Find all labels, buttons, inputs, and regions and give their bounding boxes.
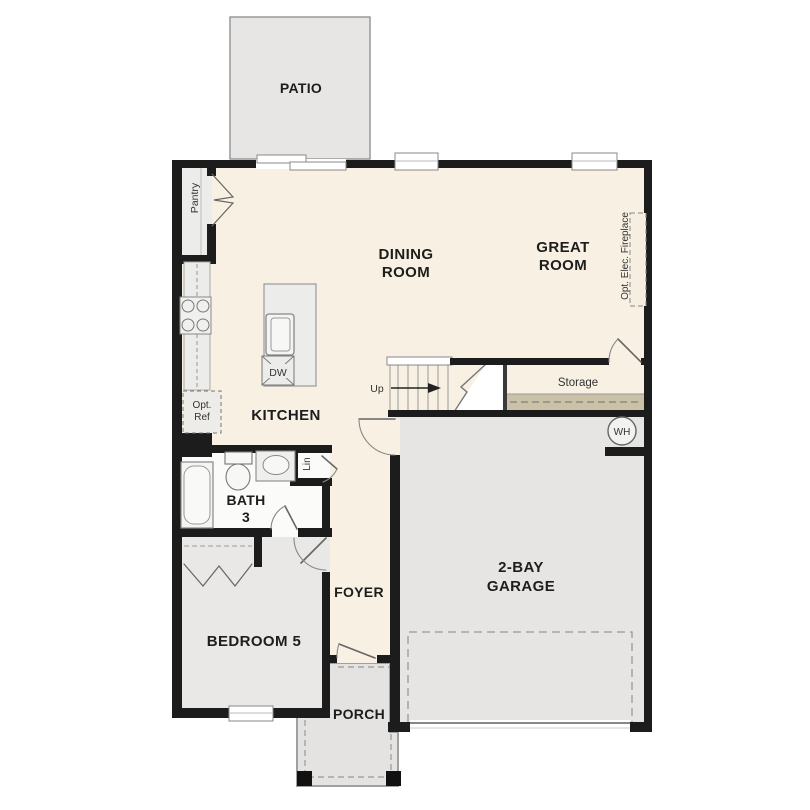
- floorplan-page: PATIO DINING ROOM GREAT ROOM KITCHEN BAT…: [0, 0, 810, 810]
- bedroom-area: [177, 532, 330, 712]
- window-great-room: [572, 153, 617, 170]
- wall-lin-bottom: [290, 478, 332, 486]
- great-label-1: GREAT: [536, 239, 589, 256]
- wall-garage-top: [388, 410, 652, 417]
- wall-pantry-stub-top: [207, 168, 216, 176]
- wall-bath-bottom-right: [298, 528, 332, 537]
- bedroom-label: BEDROOM 5: [207, 633, 301, 650]
- wall-porch-left: [322, 655, 337, 663]
- stove-icon: [180, 297, 211, 334]
- garage-door-opening: [410, 720, 630, 732]
- water-heater-label: WH: [614, 427, 631, 438]
- floorplan-svg: PATIO DINING ROOM GREAT ROOM KITCHEN BAT…: [0, 0, 810, 810]
- bath-label-2: 3: [242, 509, 250, 525]
- wall-pantry-stub-bottom: [207, 224, 216, 255]
- stair-handrail: [387, 357, 452, 365]
- wall-garage-bottom-left: [388, 722, 410, 732]
- storage-label: Storage: [558, 377, 598, 389]
- wall-garage-left: [390, 455, 400, 732]
- dishwasher-label: DW: [269, 367, 287, 379]
- foyer-hall-area: [325, 410, 396, 660]
- porch-post-left: [297, 771, 312, 786]
- bathtub-icon: [181, 462, 213, 528]
- patio-label: PATIO: [280, 80, 322, 96]
- wall-stairs-top-stub: [641, 358, 652, 365]
- bath-label-1: BATH: [226, 492, 265, 508]
- fireplace-dashed-box: [630, 213, 646, 306]
- toilet-icon: [225, 452, 252, 490]
- wall-kitchen-block: [172, 433, 212, 457]
- patio-slider-panel2: [290, 162, 346, 170]
- wall-stairs-top: [450, 358, 609, 365]
- porch-label: PORCH: [333, 706, 385, 722]
- fireplace-label: Opt. Elec. Fireplace: [620, 212, 631, 300]
- porch-post-right: [386, 771, 401, 786]
- window-dining: [395, 153, 438, 170]
- dining-label-2: ROOM: [382, 264, 430, 281]
- opt-ref-label-1: Opt.: [193, 400, 212, 411]
- great-label-2: ROOM: [539, 257, 587, 274]
- opt-ref-label-2: Ref: [194, 412, 210, 423]
- wall-wh-stub: [605, 447, 644, 456]
- pantry-label: Pantry: [189, 182, 201, 213]
- storage-divider-wall: [503, 365, 507, 410]
- wall-porch-right: [377, 655, 392, 663]
- up-label: Up: [370, 383, 384, 395]
- garage-label-2: GARAGE: [487, 578, 555, 595]
- vanity-sink-icon: [256, 451, 295, 481]
- wall-closet-right: [254, 537, 262, 567]
- kitchen-label: KITCHEN: [251, 407, 320, 424]
- dining-label-1: DINING: [379, 246, 434, 263]
- wall-bath-bottom-left: [172, 528, 272, 537]
- wall-foyer-bedroom: [322, 572, 330, 718]
- foyer-label: FOYER: [334, 584, 384, 600]
- garage-label-1: 2-BAY: [498, 559, 544, 576]
- linen-label: Lin: [302, 457, 313, 470]
- wall-garage-bottom-right: [630, 722, 652, 732]
- window-bedroom: [229, 706, 273, 721]
